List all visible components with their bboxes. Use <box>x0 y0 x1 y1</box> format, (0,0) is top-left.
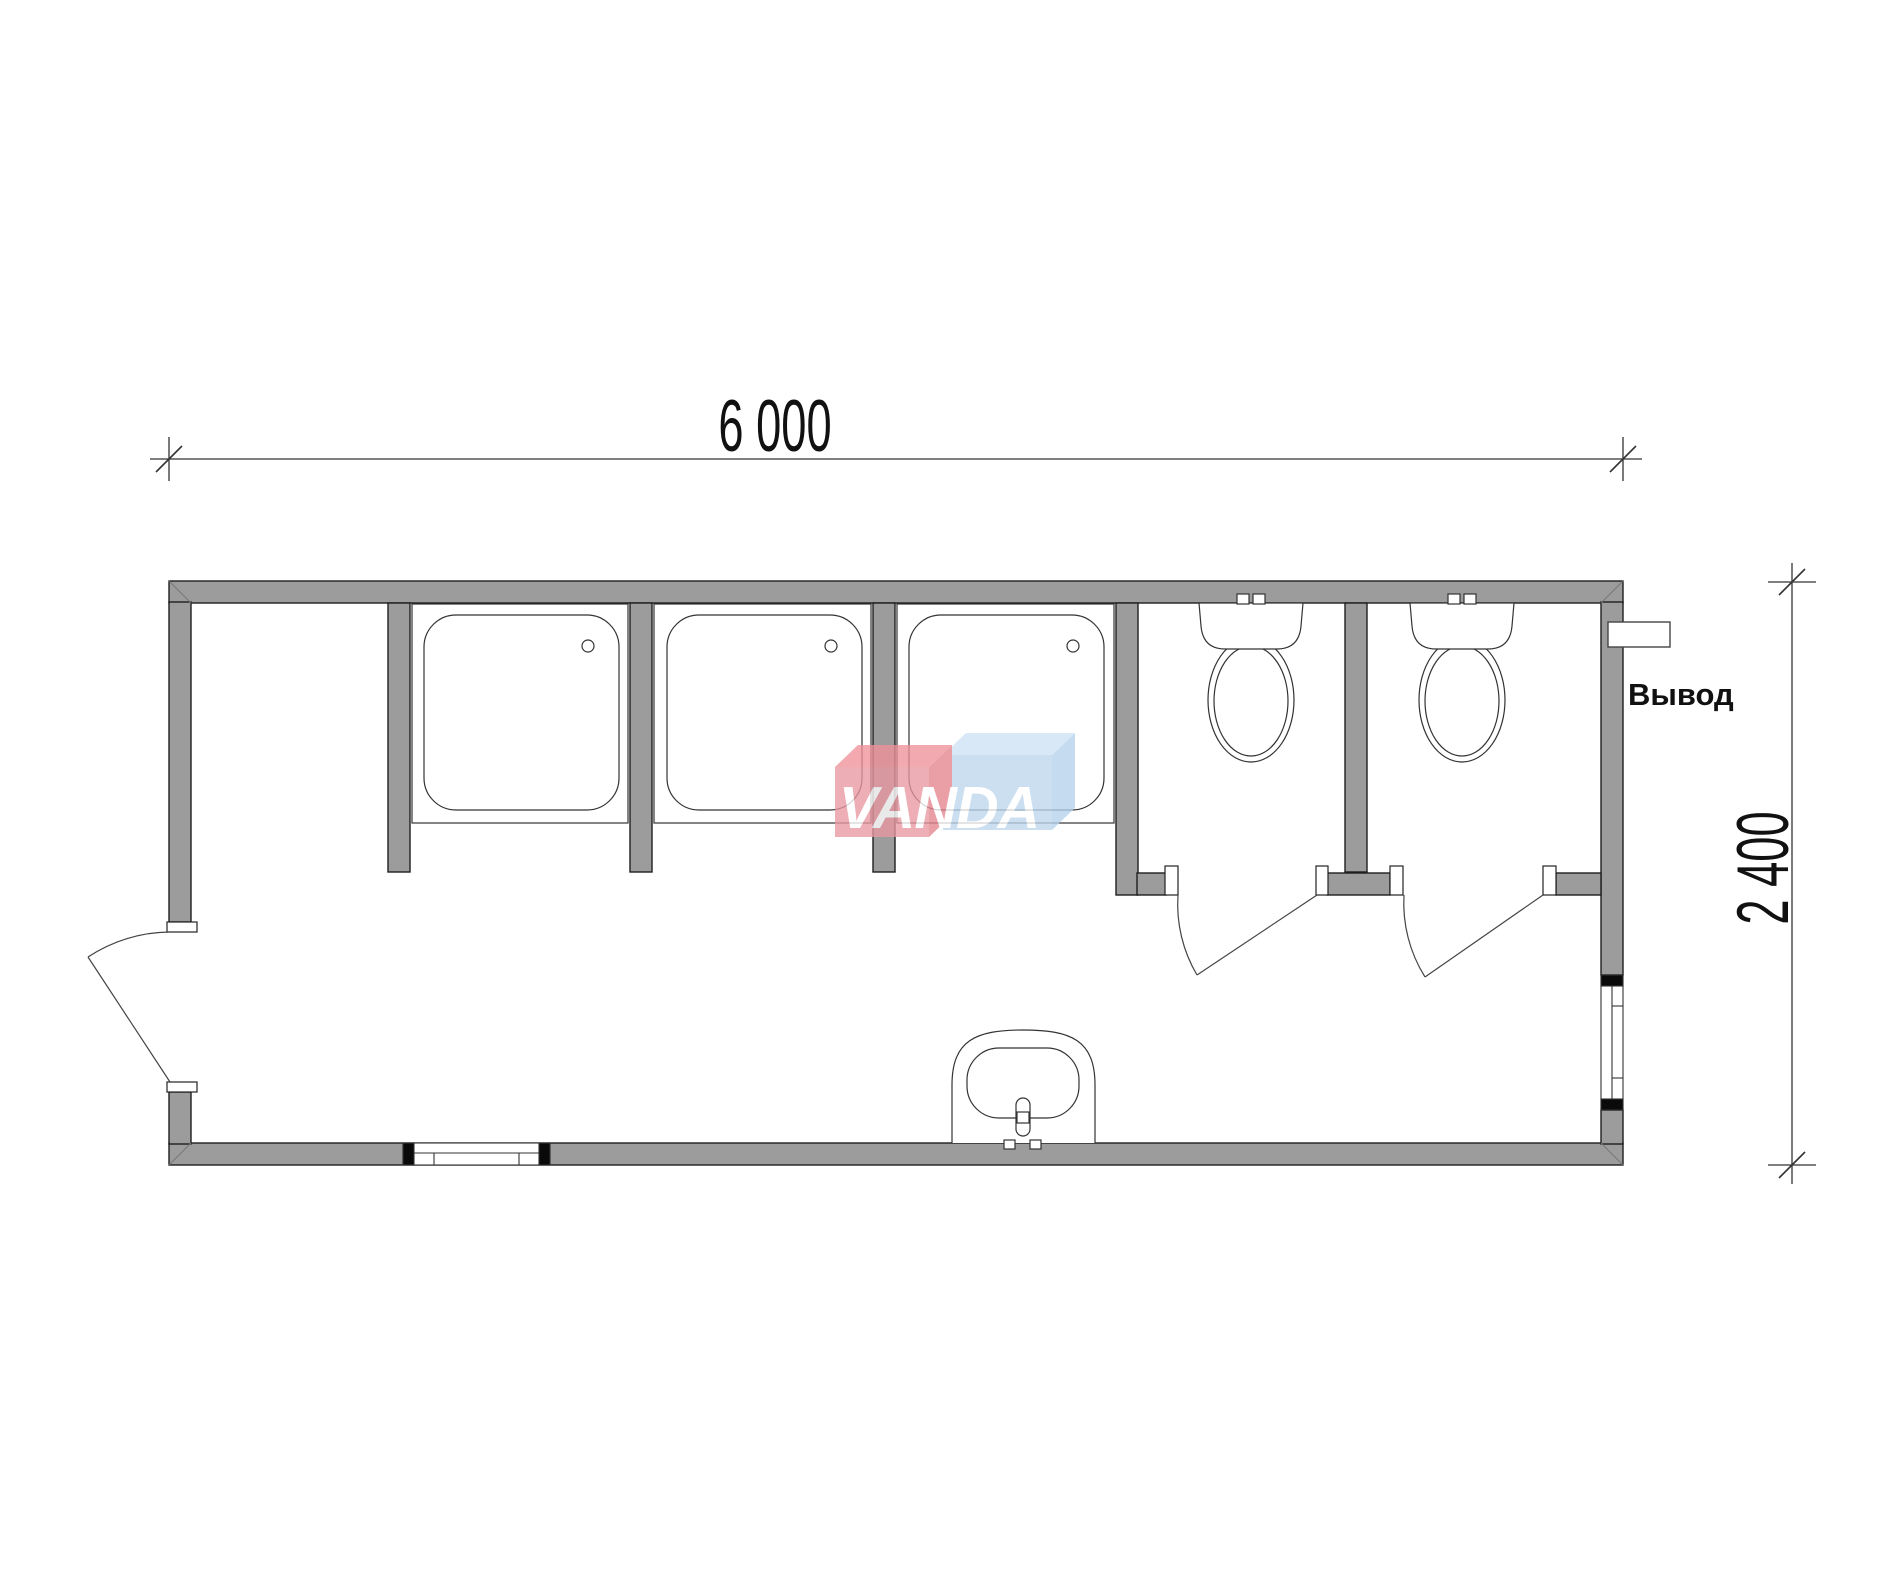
wall-right-lower <box>1601 1110 1623 1144</box>
shower-stall-1 <box>412 604 628 823</box>
window-cap <box>1601 975 1623 986</box>
wc1-front-wall-stub <box>1137 873 1166 895</box>
top-dimension: 6 000 <box>150 385 1642 481</box>
outlet-stub <box>1608 622 1670 647</box>
entry-door <box>88 922 197 1092</box>
doors <box>88 866 1556 1092</box>
door-swing-arc <box>1404 895 1425 977</box>
partition-shower1-shower2 <box>630 603 652 872</box>
window-cap <box>403 1143 414 1165</box>
wc1-door <box>1165 866 1328 975</box>
partition-wc1-wc2 <box>1345 603 1367 872</box>
wc2-front-wall-stub <box>1556 873 1601 895</box>
toilet-1 <box>1199 594 1303 762</box>
window-bottom <box>403 1143 550 1165</box>
toilet-tank <box>1199 603 1303 649</box>
partition-entry-shower1 <box>388 603 410 872</box>
sink-faucet-base <box>1017 1112 1029 1123</box>
toilet-flush-button <box>1237 594 1249 604</box>
door-leaf <box>1425 895 1543 977</box>
wc-middle-front-stub <box>1327 873 1390 895</box>
right-dimension: 2 400 <box>1722 563 1816 1184</box>
wall-bottom <box>169 1143 1623 1165</box>
toilet-bowl-outer <box>1208 638 1294 762</box>
toilet-flush-button <box>1253 594 1265 604</box>
door-leaf <box>88 957 170 1082</box>
sink-supply-mark <box>1004 1140 1015 1149</box>
door-swing-arc <box>88 932 170 957</box>
door-jamb <box>1543 866 1556 895</box>
walls <box>169 581 1623 1165</box>
wc2-door <box>1390 866 1556 977</box>
outlet-label: Вывод <box>1628 677 1734 712</box>
window-cap <box>539 1143 550 1165</box>
toilet-flush-button <box>1464 594 1476 604</box>
vanda-watermark: VANDA <box>835 733 1075 841</box>
sink <box>952 1030 1095 1149</box>
height-dimension-label: 2 400 <box>1722 811 1804 924</box>
toilet-flush-button <box>1448 594 1460 604</box>
partition-shower3-wc1 <box>1116 603 1138 895</box>
window-opening <box>403 1143 550 1165</box>
toilet-2 <box>1410 594 1514 762</box>
wall-right-upper <box>1601 602 1623 975</box>
window-right <box>1601 975 1623 1110</box>
sink-supply-mark <box>1030 1140 1041 1149</box>
window-cap <box>1601 1099 1623 1110</box>
floor-plan-canvas: 6 000 2 400 <box>0 0 1899 1571</box>
door-leaf <box>1197 895 1317 975</box>
door-jamb <box>1316 866 1328 895</box>
door-jamb <box>167 922 197 932</box>
door-jamb <box>1165 866 1178 895</box>
wall-top <box>169 581 1623 603</box>
utility-outlet: Вывод <box>1608 622 1734 712</box>
wall-corner-miters <box>169 581 1623 1165</box>
door-jamb <box>167 1082 197 1092</box>
toilet-bowl-outer <box>1419 638 1505 762</box>
door-jamb <box>1390 866 1403 895</box>
watermark-text: VANDA <box>839 775 1039 841</box>
door-swing-arc <box>1178 895 1197 975</box>
wall-left-lower <box>169 1092 191 1144</box>
watermark-blue-top-face <box>943 733 1075 755</box>
wall-left-upper <box>169 602 191 922</box>
shower-enclosure <box>412 604 628 823</box>
toilet-tank <box>1410 603 1514 649</box>
width-dimension-label: 6 000 <box>718 385 831 467</box>
